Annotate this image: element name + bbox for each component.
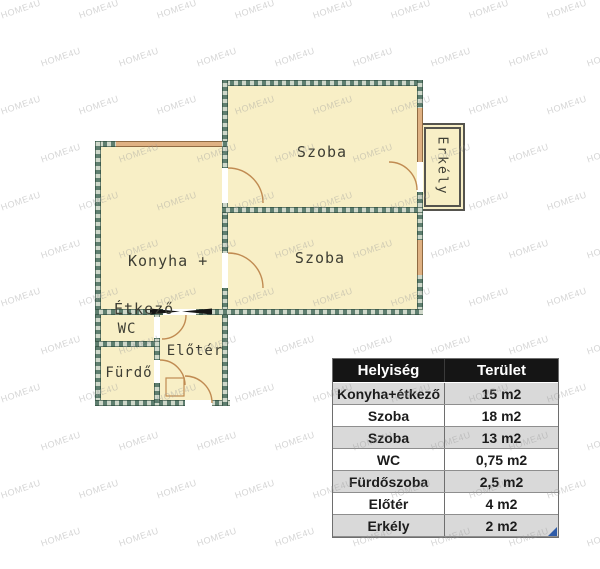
room-name-cell: Szoba bbox=[333, 427, 445, 448]
table-row: WC 0,75 m2 bbox=[333, 449, 558, 471]
room-name-cell: Előtér bbox=[333, 493, 445, 514]
table-row: Szoba 18 m2 bbox=[333, 405, 558, 427]
room-label-furdo: Fürdő bbox=[105, 365, 152, 381]
resize-corner-icon bbox=[548, 527, 557, 536]
table-row: Konyha+étkező 15 m2 bbox=[333, 383, 558, 405]
room-name-cell: Konyha+étkező bbox=[333, 383, 445, 404]
table-row: Előtér 4 m2 bbox=[333, 493, 558, 515]
room-area-cell: 2,5 m2 bbox=[445, 474, 558, 490]
room-label-szoba-bottom: Szoba bbox=[295, 249, 345, 267]
room-label-szoba-top: Szoba bbox=[297, 143, 347, 161]
table-row: Fürdőszoba 2,5 m2 bbox=[333, 471, 558, 493]
room-name-cell: Erkély bbox=[333, 515, 445, 536]
header-helyiseg: Helyiség bbox=[333, 359, 445, 382]
header-terulet: Terület bbox=[445, 362, 558, 379]
fixture-outline bbox=[166, 378, 184, 396]
table-row: Erkély 2 m2 bbox=[333, 515, 558, 537]
room-name-cell: Fürdőszoba bbox=[333, 471, 445, 492]
room-area-cell: 15 m2 bbox=[445, 386, 558, 402]
room-area-cell: 0,75 m2 bbox=[445, 452, 558, 468]
area-table-header: Helyiség Terület bbox=[333, 359, 558, 383]
area-table: Helyiség Terület Konyha+étkező 15 m2 Szo… bbox=[332, 358, 559, 538]
door-arc bbox=[389, 162, 417, 190]
room-name-cell: Szoba bbox=[333, 405, 445, 426]
door-arc bbox=[228, 253, 263, 288]
door-arc bbox=[185, 376, 212, 403]
room-name-cell: WC bbox=[333, 449, 445, 470]
door-arc bbox=[228, 168, 263, 203]
room-area-cell: 2 m2 bbox=[445, 518, 558, 534]
room-area-cell: 13 m2 bbox=[445, 430, 558, 446]
room-label-wc: WC bbox=[118, 321, 137, 337]
floorplan-page: Szoba Szoba Konyha + Étkező WC Előtér Fü… bbox=[0, 0, 600, 569]
table-row: Szoba 13 m2 bbox=[333, 427, 558, 449]
door-arc bbox=[160, 360, 185, 385]
room-area-cell: 4 m2 bbox=[445, 496, 558, 512]
room-area-cell: 18 m2 bbox=[445, 408, 558, 424]
room-label-erkely: Erkély bbox=[435, 137, 450, 196]
room-label-eloter: Előtér bbox=[167, 343, 224, 359]
